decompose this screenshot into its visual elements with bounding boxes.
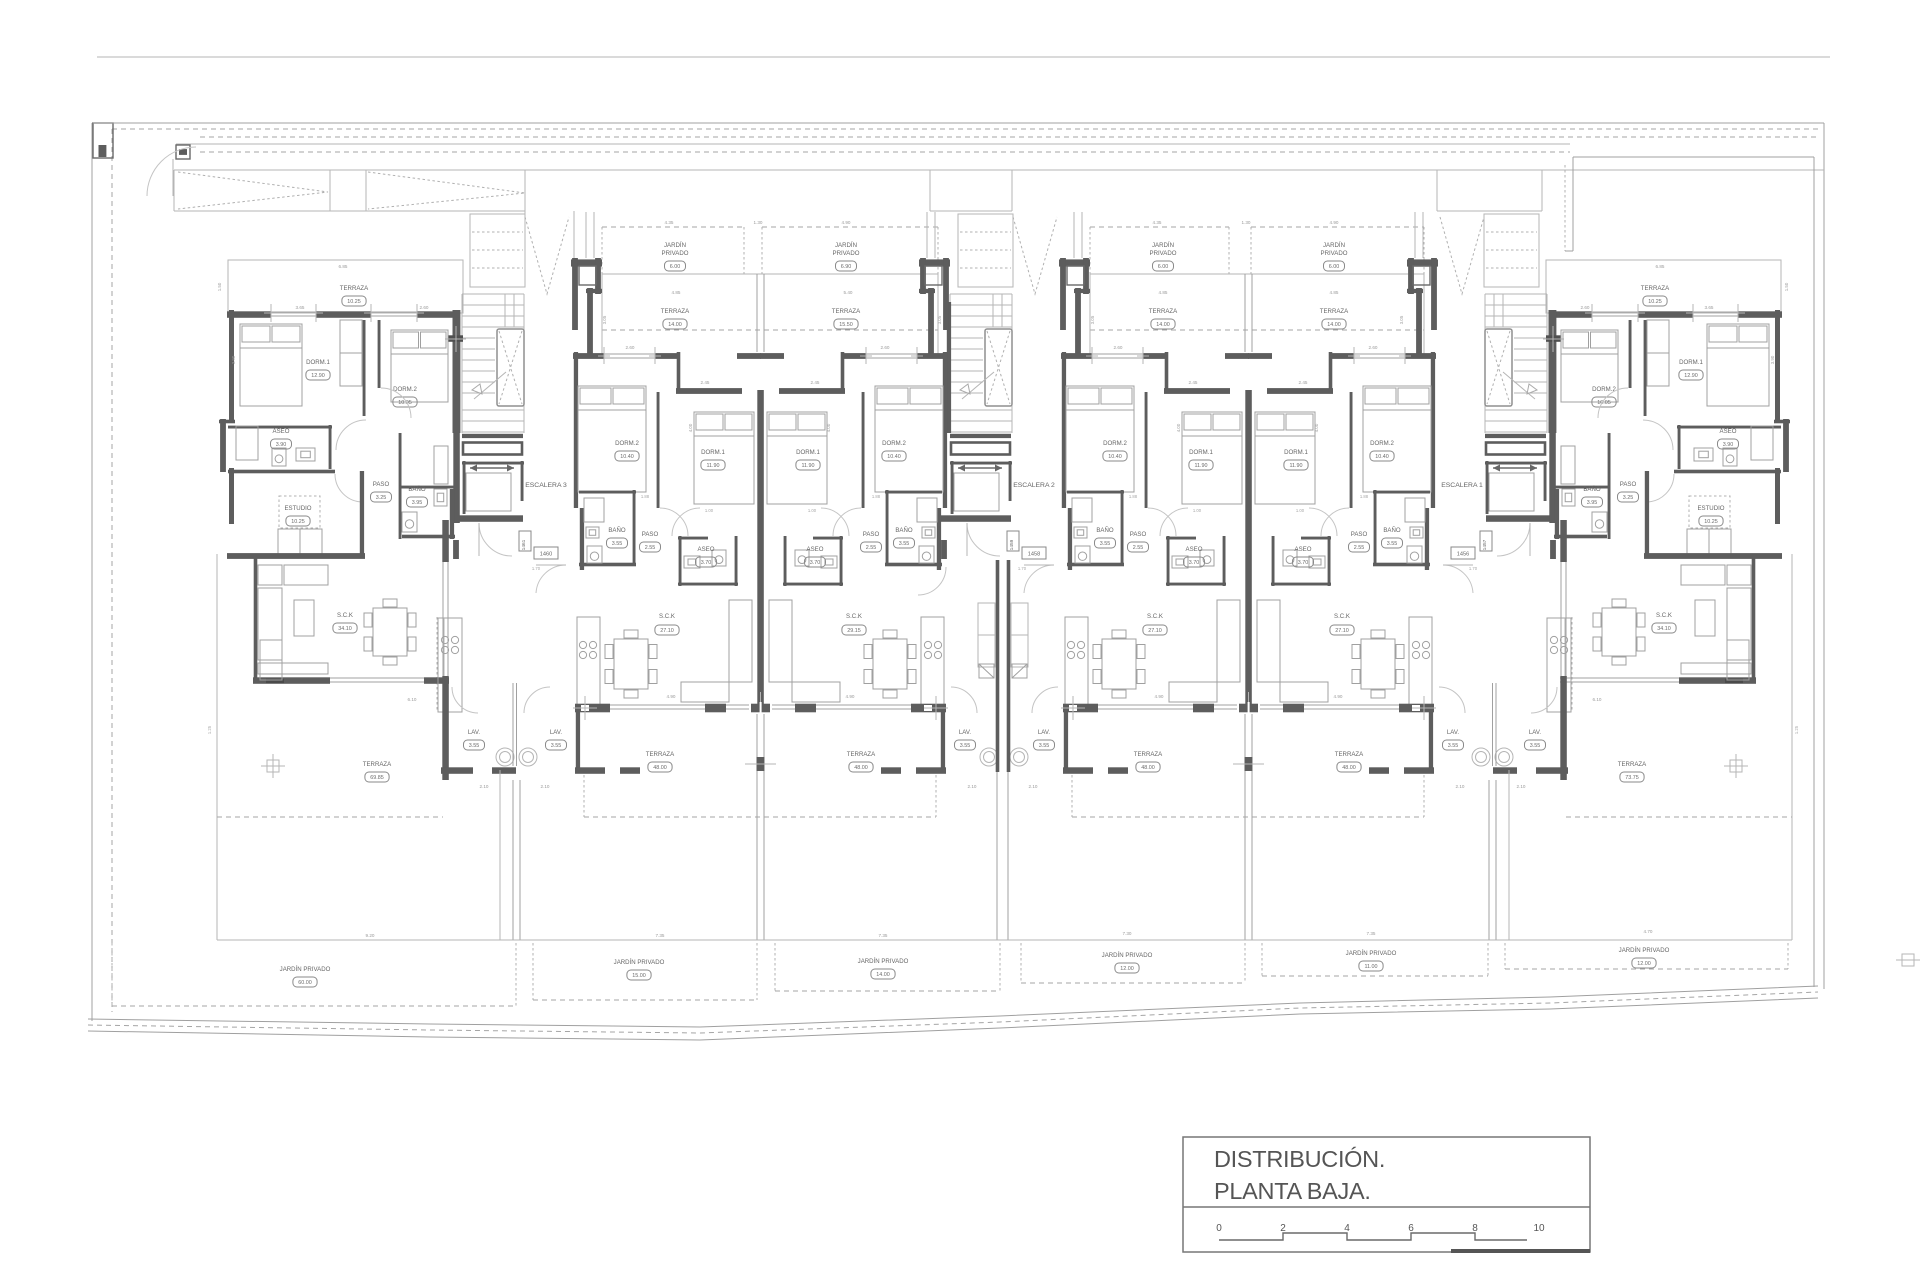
svg-text:S.C.K: S.C.K <box>337 612 353 619</box>
svg-text:S.C.K: S.C.K <box>659 613 675 620</box>
svg-text:6.85: 6.85 <box>1656 264 1665 269</box>
svg-text:4.35: 4.35 <box>1153 220 1162 225</box>
svg-text:6: 6 <box>1408 1223 1414 1234</box>
svg-text:11.90: 11.90 <box>706 463 719 469</box>
svg-text:DORM.1: DORM.1 <box>1284 449 1308 456</box>
svg-text:8: 8 <box>1472 1223 1478 1234</box>
svg-text:1.30: 1.30 <box>754 220 763 225</box>
svg-text:BAÑO: BAÑO <box>1096 527 1114 534</box>
svg-text:2.10: 2.10 <box>1517 784 1526 789</box>
svg-text:12.90: 12.90 <box>1684 373 1698 379</box>
svg-text:7.35: 7.35 <box>879 933 888 938</box>
svg-text:BAÑO: BAÑO <box>1583 486 1601 493</box>
svg-text:3.55: 3.55 <box>1387 541 1398 547</box>
svg-text:ESCALERA 3: ESCALERA 3 <box>525 482 567 489</box>
svg-text:TERRAZA: TERRAZA <box>1320 308 1349 315</box>
svg-text:3.95: 3.95 <box>412 500 423 506</box>
svg-text:2.10: 2.10 <box>480 784 489 789</box>
svg-text:1460: 1460 <box>540 552 552 558</box>
svg-text:1457: 1457 <box>1482 539 1488 550</box>
svg-text:ASEO: ASEO <box>1186 546 1203 553</box>
svg-text:JARDÍN: JARDÍN <box>1323 242 1345 249</box>
svg-text:2.60: 2.60 <box>1581 305 1590 310</box>
svg-text:11.90: 11.90 <box>801 463 814 469</box>
svg-text:TERRAZA: TERRAZA <box>1149 308 1178 315</box>
svg-text:PASO: PASO <box>642 531 659 538</box>
svg-text:BAÑO: BAÑO <box>1383 527 1401 534</box>
svg-text:1.88: 1.88 <box>641 494 650 499</box>
svg-text:48.00: 48.00 <box>1342 765 1356 771</box>
svg-text:10.40: 10.40 <box>1108 454 1122 460</box>
svg-text:3.55: 3.55 <box>1100 541 1111 547</box>
svg-text:3.95: 3.95 <box>1587 500 1598 506</box>
svg-text:LAV.: LAV. <box>959 729 972 736</box>
svg-text:2.60: 2.60 <box>420 305 429 310</box>
svg-text:DORM.1: DORM.1 <box>796 449 820 456</box>
svg-text:14.00: 14.00 <box>1156 322 1170 328</box>
svg-text:12.00: 12.00 <box>1120 966 1134 972</box>
svg-text:15.50: 15.50 <box>839 322 853 328</box>
svg-text:LAV.: LAV. <box>1447 729 1460 736</box>
svg-text:3.55: 3.55 <box>469 743 480 749</box>
svg-text:10.40: 10.40 <box>1375 454 1389 460</box>
svg-text:BAÑO: BAÑO <box>608 527 626 534</box>
svg-text:10.25: 10.25 <box>1648 299 1662 305</box>
svg-text:TERRAZA: TERRAZA <box>1134 751 1163 758</box>
svg-text:11.90: 11.90 <box>1194 463 1207 469</box>
svg-text:2.55: 2.55 <box>1354 545 1365 551</box>
svg-text:3.05: 3.05 <box>602 315 607 324</box>
svg-text:4.70: 4.70 <box>1644 929 1653 934</box>
svg-text:6.10: 6.10 <box>408 697 417 702</box>
svg-text:TERRAZA: TERRAZA <box>1618 761 1647 768</box>
svg-text:TERRAZA: TERRAZA <box>661 308 690 315</box>
svg-text:2.45: 2.45 <box>811 380 820 385</box>
svg-text:1.88: 1.88 <box>872 494 881 499</box>
svg-text:1456: 1456 <box>1457 552 1469 558</box>
svg-text:PRIVADO: PRIVADO <box>833 250 860 257</box>
svg-text:4.85: 4.85 <box>672 290 681 295</box>
svg-text:JARDÍN PRIVADO: JARDÍN PRIVADO <box>1619 947 1670 954</box>
svg-text:4.90: 4.90 <box>846 694 855 699</box>
svg-text:ASEO: ASEO <box>273 428 290 435</box>
svg-text:5.40: 5.40 <box>844 290 853 295</box>
svg-text:3.55: 3.55 <box>1530 743 1541 749</box>
svg-text:6.00: 6.00 <box>670 264 681 270</box>
svg-text:3.05: 3.05 <box>1399 315 1404 324</box>
svg-text:4.00: 4.00 <box>1176 423 1181 432</box>
svg-text:2.55: 2.55 <box>866 545 877 551</box>
svg-text:JARDÍN PRIVADO: JARDÍN PRIVADO <box>280 966 331 973</box>
svg-text:TERRAZA: TERRAZA <box>340 285 369 292</box>
svg-text:4.00: 4.00 <box>688 423 693 432</box>
svg-text:S.C.K: S.C.K <box>1334 613 1350 620</box>
svg-text:1.70: 1.70 <box>1018 566 1027 571</box>
svg-text:27.10: 27.10 <box>1335 628 1349 634</box>
svg-text:6.90: 6.90 <box>841 264 852 270</box>
svg-text:PASO: PASO <box>1130 531 1147 538</box>
svg-text:4.00: 4.00 <box>826 423 831 432</box>
svg-text:JARDÍN PRIVADO: JARDÍN PRIVADO <box>1102 952 1153 959</box>
svg-text:48.00: 48.00 <box>854 765 868 771</box>
svg-text:1.88: 1.88 <box>1360 494 1369 499</box>
svg-text:PLANTA BAJA.: PLANTA BAJA. <box>1214 1178 1371 1204</box>
svg-text:2.60: 2.60 <box>881 345 890 350</box>
svg-text:JARDÍN: JARDÍN <box>664 242 686 249</box>
svg-text:PRIVADO: PRIVADO <box>662 250 689 257</box>
svg-text:34.10: 34.10 <box>338 626 352 632</box>
svg-text:7.35: 7.35 <box>656 933 665 938</box>
svg-text:1.00: 1.00 <box>705 508 714 513</box>
svg-text:DORM.2: DORM.2 <box>615 440 639 447</box>
svg-text:3.90: 3.90 <box>231 355 236 364</box>
svg-text:3.05: 3.05 <box>1090 315 1095 324</box>
svg-text:3.90: 3.90 <box>1770 355 1775 364</box>
svg-text:10.25: 10.25 <box>291 519 305 525</box>
svg-text:DORM.1: DORM.1 <box>1679 359 1703 366</box>
svg-text:1.00: 1.00 <box>1296 508 1305 513</box>
svg-text:12.90: 12.90 <box>311 373 325 379</box>
svg-text:DORM.2: DORM.2 <box>882 440 906 447</box>
svg-text:1458: 1458 <box>1028 552 1040 558</box>
svg-text:3.55: 3.55 <box>551 743 562 749</box>
svg-text:1461: 1461 <box>521 539 527 550</box>
svg-text:1.25: 1.25 <box>207 725 212 734</box>
svg-text:3.65: 3.65 <box>1705 305 1714 310</box>
svg-text:TERRAZA: TERRAZA <box>832 308 861 315</box>
svg-text:2.55: 2.55 <box>645 545 656 551</box>
svg-text:1.50: 1.50 <box>217 282 222 291</box>
svg-text:1.00: 1.00 <box>808 508 817 513</box>
svg-text:2.10: 2.10 <box>968 784 977 789</box>
svg-text:1.70: 1.70 <box>532 566 541 571</box>
svg-text:JARDÍN PRIVADO: JARDÍN PRIVADO <box>1346 950 1397 957</box>
svg-text:1.88: 1.88 <box>1129 494 1138 499</box>
svg-text:1.30: 1.30 <box>1242 220 1251 225</box>
svg-text:4.00: 4.00 <box>1314 423 1319 432</box>
svg-text:PRIVADO: PRIVADO <box>1150 250 1177 257</box>
svg-text:DORM.1: DORM.1 <box>1189 449 1213 456</box>
svg-text:10: 10 <box>1533 1223 1545 1234</box>
svg-text:14.00: 14.00 <box>1327 322 1341 328</box>
svg-text:4.85: 4.85 <box>1159 290 1168 295</box>
svg-text:10.25: 10.25 <box>1704 519 1718 525</box>
svg-text:12.00: 12.00 <box>1637 961 1651 967</box>
svg-text:3.25: 3.25 <box>376 495 387 501</box>
svg-text:TERRAZA: TERRAZA <box>1641 285 1670 292</box>
svg-text:9.20: 9.20 <box>366 933 375 938</box>
svg-text:ASEO: ASEO <box>1720 428 1737 435</box>
svg-text:10.40: 10.40 <box>620 454 634 460</box>
svg-text:4.90: 4.90 <box>1334 694 1343 699</box>
svg-text:60.00: 60.00 <box>298 980 312 986</box>
svg-text:10.40: 10.40 <box>887 454 901 460</box>
svg-text:DORM.1: DORM.1 <box>701 449 725 456</box>
svg-text:14.00: 14.00 <box>668 322 682 328</box>
svg-text:ESTUDIO: ESTUDIO <box>284 505 311 512</box>
svg-text:PASO: PASO <box>373 481 390 488</box>
svg-text:4.85: 4.85 <box>1330 290 1339 295</box>
svg-text:3.55: 3.55 <box>1448 743 1459 749</box>
svg-text:3.55: 3.55 <box>1039 743 1050 749</box>
svg-text:DORM.2: DORM.2 <box>1103 440 1127 447</box>
svg-text:LAV.: LAV. <box>468 729 481 736</box>
svg-text:3.70: 3.70 <box>701 560 712 566</box>
svg-text:JARDÍN PRIVADO: JARDÍN PRIVADO <box>858 958 909 965</box>
svg-text:2.45: 2.45 <box>701 380 710 385</box>
svg-text:11.90: 11.90 <box>1289 463 1302 469</box>
svg-text:PASO: PASO <box>1620 481 1637 488</box>
svg-text:ASEO: ASEO <box>698 546 715 553</box>
svg-text:15.00: 15.00 <box>632 973 646 979</box>
svg-text:3.55: 3.55 <box>960 743 971 749</box>
svg-text:11.00: 11.00 <box>1364 964 1377 970</box>
svg-text:LAV.: LAV. <box>1038 729 1051 736</box>
svg-text:6.00: 6.00 <box>1329 264 1340 270</box>
svg-text:1.25: 1.25 <box>1794 725 1799 734</box>
svg-text:1.00: 1.00 <box>1193 508 1202 513</box>
svg-text:3.55: 3.55 <box>899 541 910 547</box>
svg-text:3.70: 3.70 <box>810 560 821 566</box>
svg-text:1.50: 1.50 <box>1784 282 1789 291</box>
svg-text:2.60: 2.60 <box>1114 345 1123 350</box>
svg-text:10.25: 10.25 <box>347 299 361 305</box>
svg-text:1.70: 1.70 <box>1469 566 1478 571</box>
svg-text:LAV.: LAV. <box>1529 729 1542 736</box>
svg-text:TERRAZA: TERRAZA <box>646 751 675 758</box>
svg-text:4.90: 4.90 <box>1155 694 1164 699</box>
svg-text:6.10: 6.10 <box>1593 697 1602 702</box>
svg-text:6.85: 6.85 <box>339 264 348 269</box>
svg-text:JARDÍN PRIVADO: JARDÍN PRIVADO <box>614 959 665 966</box>
svg-text:BAÑO: BAÑO <box>895 527 913 534</box>
svg-text:TERRAZA: TERRAZA <box>363 761 392 768</box>
svg-text:2.10: 2.10 <box>541 784 550 789</box>
svg-text:S.C.K: S.C.K <box>1656 612 1672 619</box>
svg-text:7.30: 7.30 <box>1123 931 1132 936</box>
svg-text:S.C.K: S.C.K <box>846 613 862 620</box>
svg-text:2.10: 2.10 <box>1456 784 1465 789</box>
svg-text:ESCALERA 1: ESCALERA 1 <box>1441 482 1483 489</box>
svg-text:3.90: 3.90 <box>276 442 287 448</box>
svg-text:3.70: 3.70 <box>1298 560 1309 566</box>
svg-text:3.55: 3.55 <box>612 541 623 547</box>
svg-text:3.65: 3.65 <box>296 305 305 310</box>
svg-text:73.75: 73.75 <box>1625 775 1639 781</box>
svg-text:ASEO: ASEO <box>1295 546 1312 553</box>
svg-text:6.00: 6.00 <box>1158 264 1169 270</box>
svg-text:DISTRIBUCIÓN.: DISTRIBUCIÓN. <box>1214 1146 1385 1172</box>
svg-text:3.70: 3.70 <box>1189 560 1200 566</box>
svg-text:10.05: 10.05 <box>398 400 412 406</box>
svg-text:LAV.: LAV. <box>550 729 563 736</box>
svg-text:BAÑO: BAÑO <box>408 486 426 493</box>
svg-text:10.05: 10.05 <box>1597 400 1611 406</box>
svg-text:3.90: 3.90 <box>1723 442 1734 448</box>
svg-text:3.05: 3.05 <box>937 315 942 324</box>
svg-text:JARDÍN: JARDÍN <box>835 242 857 249</box>
svg-text:27.10: 27.10 <box>660 628 674 634</box>
svg-text:2: 2 <box>1280 1223 1286 1234</box>
svg-text:4: 4 <box>1344 1223 1350 1234</box>
svg-text:4.90: 4.90 <box>1330 220 1339 225</box>
svg-text:3.25: 3.25 <box>1623 495 1634 501</box>
svg-text:ESCALERA 2: ESCALERA 2 <box>1013 482 1055 489</box>
svg-text:69.85: 69.85 <box>370 775 384 781</box>
svg-text:34.10: 34.10 <box>1657 626 1671 632</box>
svg-text:ESTUDIO: ESTUDIO <box>1697 505 1724 512</box>
svg-text:2.45: 2.45 <box>1189 380 1198 385</box>
svg-text:48.00: 48.00 <box>1141 765 1155 771</box>
svg-text:0: 0 <box>1216 1223 1222 1234</box>
svg-text:ASEO: ASEO <box>807 546 824 553</box>
svg-text:2.60: 2.60 <box>626 345 635 350</box>
svg-text:JARDÍN: JARDÍN <box>1152 242 1174 249</box>
svg-text:PRIVADO: PRIVADO <box>1321 250 1348 257</box>
svg-text:4.35: 4.35 <box>665 220 674 225</box>
svg-text:1459: 1459 <box>1009 539 1015 550</box>
svg-text:4.90: 4.90 <box>667 694 676 699</box>
svg-text:S.C.K: S.C.K <box>1147 613 1163 620</box>
svg-text:2.10: 2.10 <box>1029 784 1038 789</box>
svg-text:7.35: 7.35 <box>1367 931 1376 936</box>
svg-text:2.55: 2.55 <box>1133 545 1144 551</box>
svg-text:4.90: 4.90 <box>842 220 851 225</box>
svg-text:PASO: PASO <box>863 531 880 538</box>
svg-text:2.45: 2.45 <box>1299 380 1308 385</box>
svg-text:14.00: 14.00 <box>876 972 890 978</box>
svg-text:2.60: 2.60 <box>1369 345 1378 350</box>
svg-text:DORM.2: DORM.2 <box>1370 440 1394 447</box>
svg-text:PASO: PASO <box>1351 531 1368 538</box>
svg-text:DORM.1: DORM.1 <box>306 359 330 366</box>
svg-text:48.00: 48.00 <box>653 765 667 771</box>
svg-text:29.15: 29.15 <box>847 628 861 634</box>
svg-text:27.10: 27.10 <box>1148 628 1162 634</box>
svg-text:TERRAZA: TERRAZA <box>1335 751 1364 758</box>
svg-text:TERRAZA: TERRAZA <box>847 751 876 758</box>
